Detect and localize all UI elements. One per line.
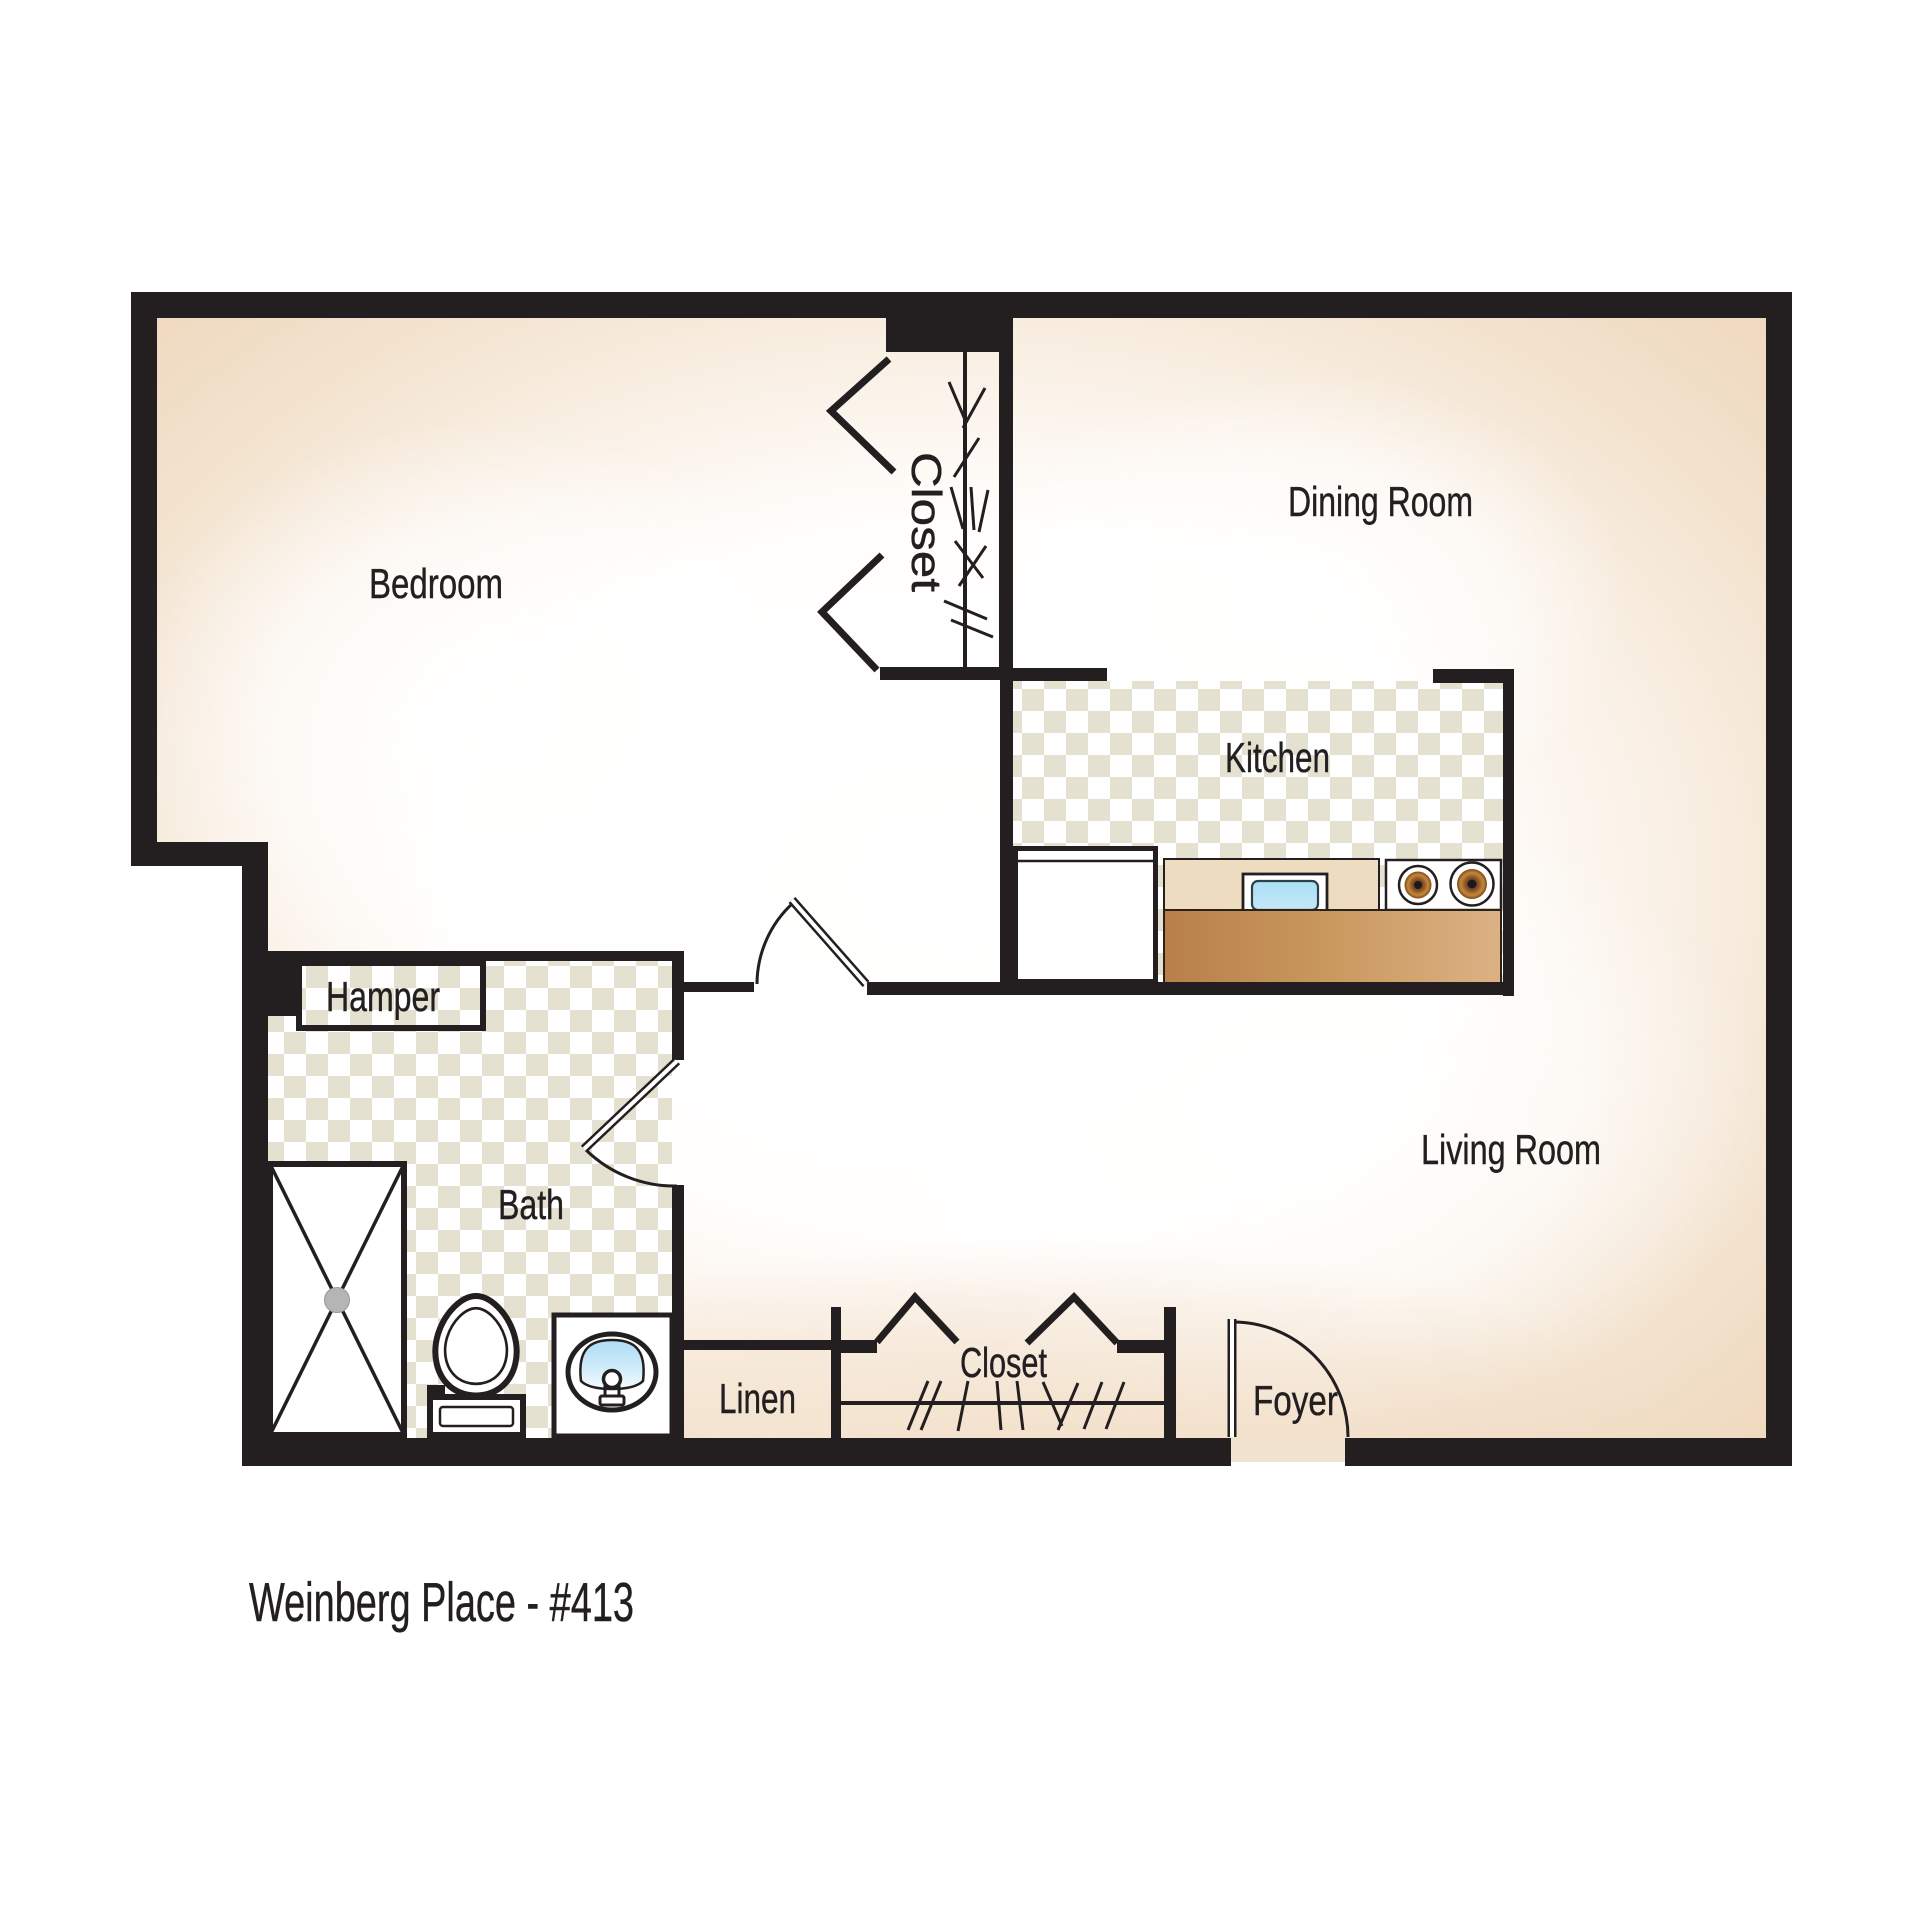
svg-text:Dining Room: Dining Room [1288,478,1473,525]
svg-text:Weinberg Place - #413: Weinberg Place - #413 [249,1571,634,1633]
svg-text:Kitchen: Kitchen [1225,734,1330,781]
svg-text:Foyer: Foyer [1253,1377,1338,1424]
svg-text:Living Room: Living Room [1421,1126,1601,1173]
svg-text:Bedroom: Bedroom [369,560,503,607]
svg-text:Bath: Bath [498,1181,564,1228]
svg-text:Closet: Closet [960,1339,1047,1386]
svg-text:Hamper: Hamper [326,973,440,1020]
svg-text:Linen: Linen [719,1375,796,1422]
svg-text:Closet: Closet [903,452,950,592]
